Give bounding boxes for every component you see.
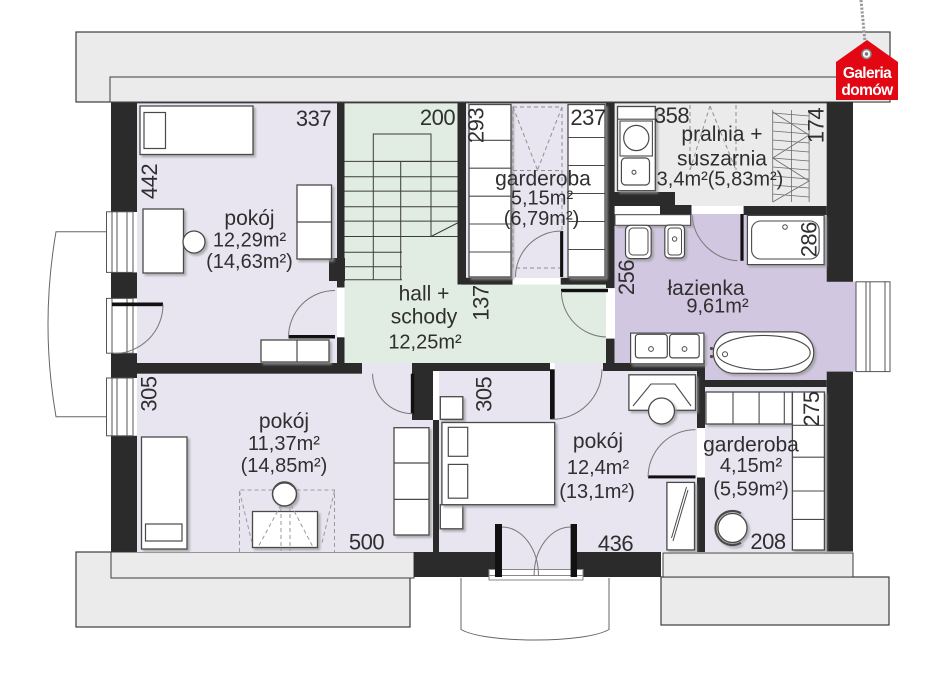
svg-text:337: 337 — [296, 106, 331, 131]
svg-text:Galeria: Galeria — [843, 65, 892, 82]
svg-text:(13,1m²): (13,1m²) — [559, 481, 635, 503]
svg-text:(14,63m²): (14,63m²) — [206, 251, 293, 273]
svg-text:(5,59m²): (5,59m²) — [713, 479, 789, 501]
svg-text:pokój: pokój — [573, 430, 623, 453]
svg-text:208: 208 — [750, 529, 785, 554]
svg-text:237: 237 — [570, 105, 605, 130]
svg-text:442: 442 — [137, 164, 162, 199]
svg-text:3,4m²(5,83m²): 3,4m²(5,83m²) — [657, 169, 784, 191]
svg-text:293: 293 — [464, 108, 489, 143]
svg-text:174: 174 — [804, 108, 829, 143]
svg-text:(14,85m²): (14,85m²) — [241, 455, 328, 477]
svg-text:9,61m²: 9,61m² — [686, 296, 749, 318]
svg-text:305: 305 — [137, 376, 162, 411]
svg-text:(6,79m²): (6,79m²) — [504, 208, 580, 230]
svg-text:11,37m²: 11,37m² — [248, 433, 320, 455]
svg-text:12,29m²: 12,29m² — [213, 230, 287, 252]
svg-text:5,15m²: 5,15m² — [511, 188, 574, 210]
svg-text:schody: schody — [391, 306, 458, 329]
svg-text:pokój: pokój — [224, 207, 274, 230]
svg-text:4,15m²: 4,15m² — [720, 455, 783, 477]
svg-text:137: 137 — [469, 285, 494, 320]
svg-text:286: 286 — [797, 222, 822, 257]
svg-text:500: 500 — [349, 530, 384, 555]
svg-text:pralnia +: pralnia + — [681, 123, 762, 146]
svg-text:domów: domów — [841, 82, 894, 99]
svg-text:358: 358 — [654, 103, 689, 128]
svg-text:hall +: hall + — [399, 283, 450, 306]
svg-text:suszarnia: suszarnia — [677, 148, 767, 171]
svg-text:pokój: pokój — [259, 410, 309, 433]
svg-text:275: 275 — [799, 391, 824, 426]
svg-text:200: 200 — [420, 105, 455, 130]
svg-text:305: 305 — [472, 376, 497, 411]
svg-text:12,4m²: 12,4m² — [567, 457, 630, 479]
svg-text:12,25m²: 12,25m² — [388, 332, 462, 354]
svg-text:256: 256 — [614, 260, 639, 295]
svg-text:garderoba: garderoba — [703, 434, 799, 457]
svg-text:436: 436 — [598, 531, 633, 556]
